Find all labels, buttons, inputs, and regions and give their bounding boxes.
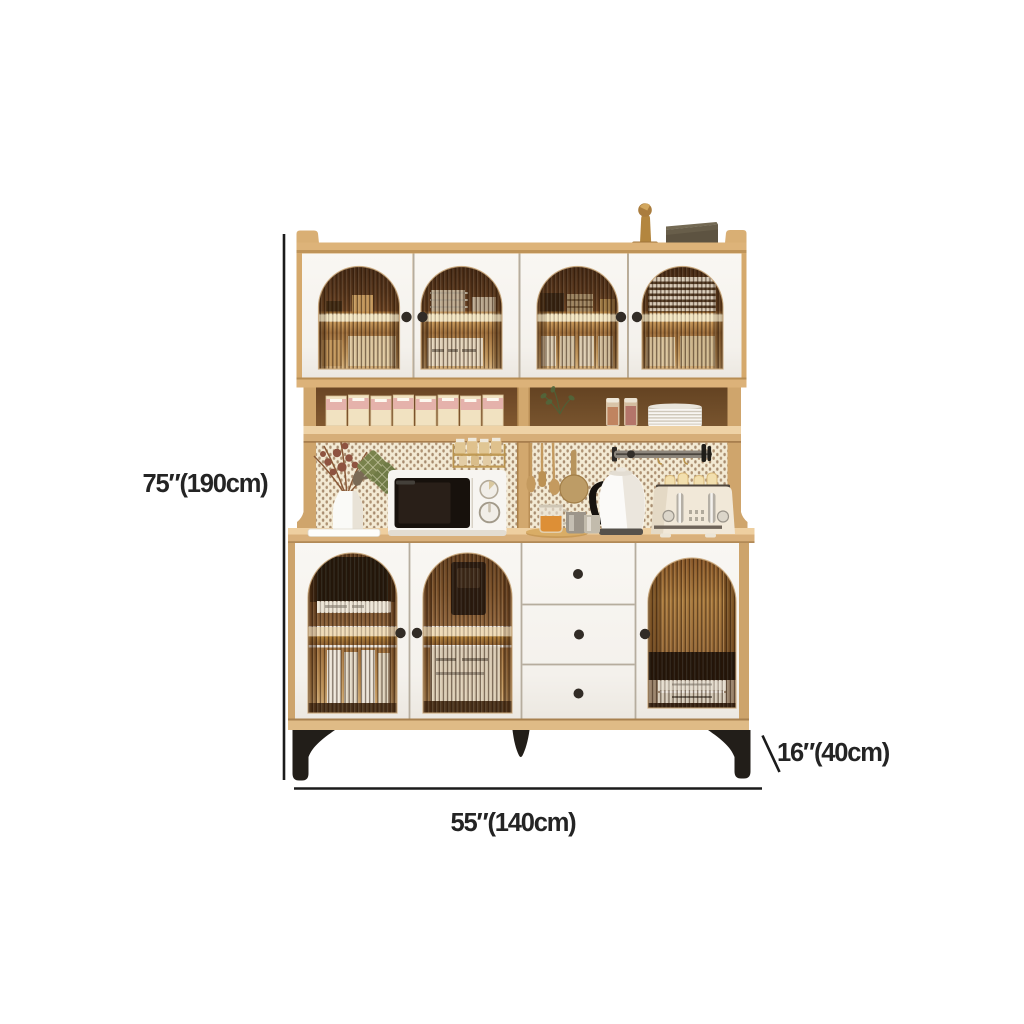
svg-text:16″(40cm): 16″(40cm) — [777, 739, 890, 767]
svg-text:55″(140cm): 55″(140cm) — [451, 809, 577, 837]
svg-text:75″(190cm): 75″(190cm) — [143, 470, 269, 498]
